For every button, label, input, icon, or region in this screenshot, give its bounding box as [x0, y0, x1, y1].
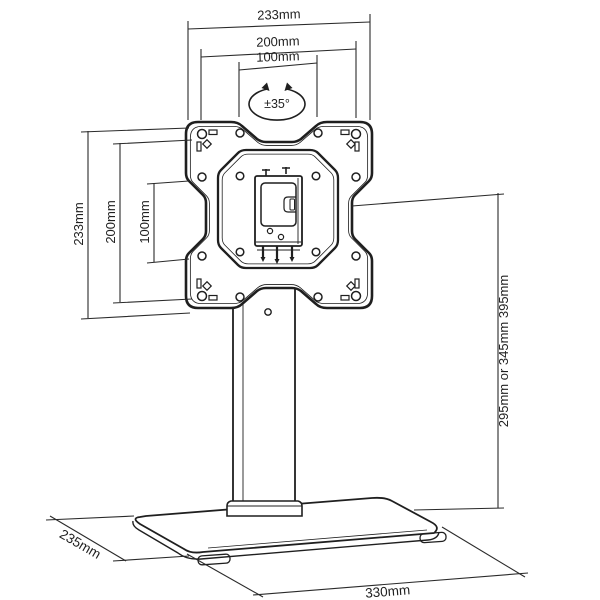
- hole-100-top-right: [314, 129, 322, 137]
- hole-inner-bottom-left: [236, 248, 244, 256]
- slot-br-3: [355, 279, 359, 288]
- technical-drawing-monitor-stand: 233mm 200mm 100mm ±35° 233mm 200mm 100mm…: [0, 0, 600, 600]
- column-hole: [265, 309, 271, 315]
- mount-bracket: [255, 167, 302, 264]
- hole-inner-top-right: [312, 172, 320, 180]
- hole-100-bottom-right: [314, 293, 322, 301]
- dim-label-width-200: 200mm: [256, 33, 300, 50]
- slot-tl-1: [209, 130, 217, 135]
- slot-tl-3: [197, 142, 201, 151]
- hole-inner-bottom-right: [312, 248, 320, 256]
- slot-tr-3: [355, 142, 359, 151]
- dim-label-height-200: 200mm: [103, 200, 118, 243]
- stand-diagram-svg: 233mm 200mm 100mm ±35° 233mm 200mm 100mm…: [0, 0, 600, 600]
- hole-200-top-left: [198, 130, 207, 139]
- stand-column: [227, 278, 302, 516]
- hole-200-top-right: [352, 130, 361, 139]
- slot-bl-3: [197, 279, 201, 288]
- dim-label-height-233: 233mm: [71, 202, 86, 245]
- dim-label-width-233: 233mm: [257, 6, 301, 23]
- vesa-plate: [186, 122, 372, 308]
- slot-tr-1: [341, 130, 349, 135]
- hole-100-top-left: [236, 129, 244, 137]
- swivel-angle-label: ±35°: [264, 97, 290, 111]
- dim-label-pole-height: 295mm or 345mm 395mm: [496, 275, 511, 427]
- hole-side-left-upper: [198, 173, 206, 181]
- hole-100-bottom-left: [236, 293, 244, 301]
- dim-label-base-width: 330mm: [365, 582, 411, 600]
- hole-side-right-lower: [352, 252, 360, 260]
- slot-br-1: [341, 296, 349, 301]
- hole-side-left-lower: [198, 252, 206, 260]
- slot-bl-1: [209, 296, 217, 301]
- hole-inner-top-left: [236, 172, 244, 180]
- dim-label-height-100: 100mm: [137, 200, 152, 243]
- dim-label-width-100: 100mm: [256, 48, 300, 65]
- column-collar: [227, 501, 302, 516]
- hole-200-bottom-left: [198, 292, 207, 301]
- column-body: [233, 278, 295, 504]
- hole-side-right-upper: [352, 173, 360, 181]
- hole-200-bottom-right: [352, 292, 361, 301]
